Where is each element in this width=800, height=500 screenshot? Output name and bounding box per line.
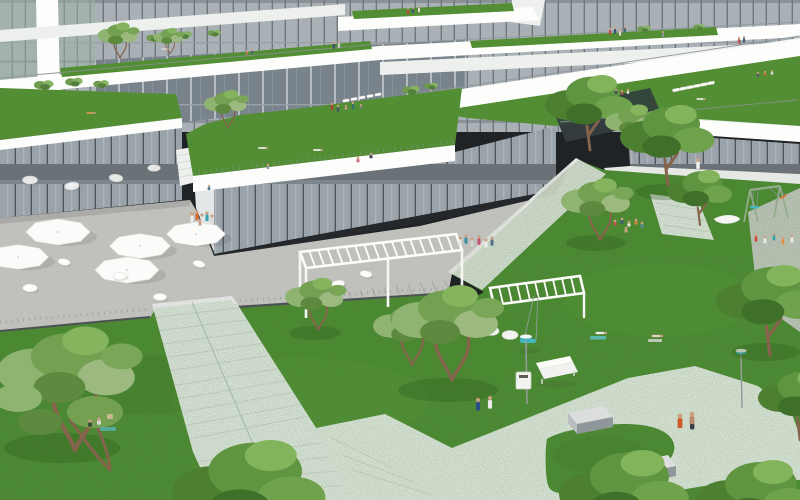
person-sunbathing [86, 112, 95, 114]
child-running [764, 236, 767, 244]
rendering-canvas: Campus architectural rendering [0, 0, 800, 500]
person-sitting [615, 89, 618, 94]
person-standing [477, 235, 480, 244]
person-standing [619, 29, 621, 36]
shorts [690, 424, 694, 430]
person-walking [696, 158, 700, 169]
person-standing [470, 237, 473, 246]
stepping-disc [502, 331, 518, 340]
child-running [791, 235, 794, 243]
child-running [755, 234, 758, 242]
person-walking [743, 36, 745, 43]
person-sitting [251, 49, 254, 54]
person-sitting [640, 222, 643, 228]
person-standing [195, 210, 198, 220]
person-jogging [476, 398, 480, 411]
person-standing [210, 214, 213, 224]
person-sitting [246, 50, 249, 55]
person-standing [464, 234, 467, 243]
person-standing [205, 211, 208, 221]
person-sitting [198, 220, 201, 226]
person-sitting [771, 70, 774, 75]
person-sitting [634, 219, 637, 225]
person-standing [412, 7, 414, 13]
person-sitting [620, 218, 623, 224]
person-sunbathing [696, 98, 705, 100]
person-walking [738, 37, 740, 44]
person-sunbathing [258, 147, 268, 149]
person-standing [407, 8, 409, 14]
person-sunbathing [161, 48, 169, 50]
person-standing [337, 105, 339, 112]
person-sitting [369, 153, 372, 159]
person-sitting [757, 72, 760, 77]
person-standing [490, 236, 493, 245]
person-standing [338, 41, 340, 48]
person-sitting [360, 104, 363, 109]
person-sitting [345, 105, 348, 110]
person-sitting [267, 164, 270, 169]
child-running [782, 237, 785, 245]
person-walking [678, 414, 683, 429]
person-sitting [627, 221, 630, 227]
person-sitting [356, 157, 359, 163]
person-sitting [624, 227, 627, 233]
person-standing [331, 103, 333, 110]
person-standing [190, 212, 193, 222]
person-standing [352, 102, 354, 109]
person-standing [614, 27, 616, 34]
person-sitting [627, 89, 630, 94]
person-standing [458, 236, 461, 245]
person-sitting [613, 220, 616, 226]
person-sitting [621, 90, 624, 95]
person-standing [418, 6, 420, 12]
person-standing [484, 238, 487, 247]
litter-bin [516, 372, 531, 389]
swing-seat [750, 206, 759, 209]
person-standing [624, 26, 626, 33]
person-jogging [488, 396, 492, 409]
child-running [773, 233, 776, 241]
person-standing [333, 42, 335, 49]
person-sunbathing [313, 149, 323, 151]
campus-rendering: Campus architectural rendering [0, 0, 800, 500]
person-sitting [208, 185, 211, 190]
swing-shadow [519, 348, 539, 354]
person-standing [662, 31, 664, 37]
person-standing [609, 28, 611, 35]
person-sitting [764, 71, 767, 76]
